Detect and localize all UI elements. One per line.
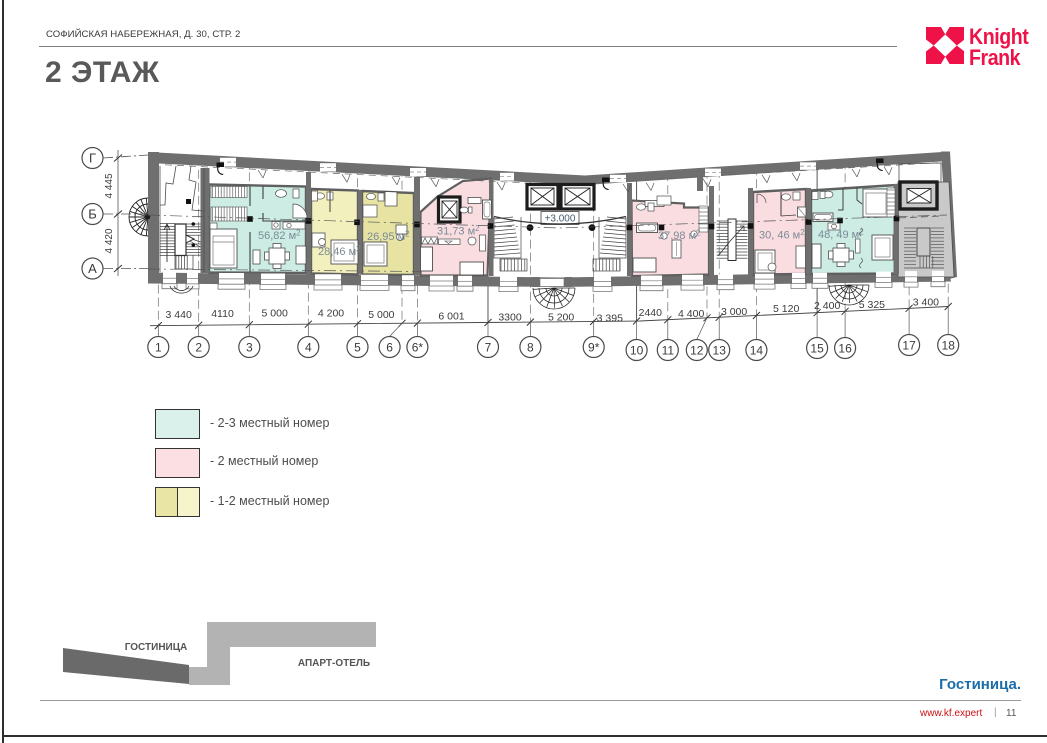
svg-text:3 440: 3 440	[166, 309, 192, 321]
svg-text:17: 17	[902, 338, 916, 352]
svg-text:48, 49 м2: 48, 49 м2	[818, 228, 864, 242]
svg-text:3 000: 3 000	[721, 306, 747, 318]
svg-text:18: 18	[942, 338, 956, 352]
svg-text:14: 14	[750, 343, 764, 357]
svg-text:4: 4	[305, 340, 312, 354]
svg-text:4 420: 4 420	[104, 228, 115, 253]
svg-text:4 445: 4 445	[104, 173, 115, 198]
svg-text:ГОСТИНИЦА: ГОСТИНИЦА	[125, 642, 188, 653]
svg-text:2440: 2440	[639, 307, 663, 319]
svg-text:28,46 м2: 28,46 м2	[318, 245, 361, 259]
svg-text:30, 46 м2: 30, 46 м2	[759, 228, 805, 242]
svg-text:56,82 м2: 56,82 м2	[258, 229, 301, 243]
svg-text:8: 8	[527, 340, 534, 354]
svg-text:4 400: 4 400	[678, 308, 704, 320]
svg-text:4 200: 4 200	[318, 308, 344, 320]
svg-text:6: 6	[386, 340, 393, 354]
svg-text:6 001: 6 001	[438, 311, 464, 323]
svg-text:5 000: 5 000	[368, 309, 394, 321]
svg-text:3: 3	[246, 340, 253, 354]
svg-text:10: 10	[630, 343, 644, 357]
svg-text:5 325: 5 325	[859, 299, 885, 311]
svg-text:3 400: 3 400	[913, 297, 939, 309]
svg-text:26,95 м2: 26,95 м2	[367, 230, 410, 244]
svg-text:9*: 9*	[588, 340, 600, 354]
svg-text:3300: 3300	[498, 312, 522, 324]
svg-text:1: 1	[155, 340, 162, 354]
svg-text:16: 16	[838, 341, 852, 355]
svg-text:13: 13	[713, 343, 727, 357]
svg-text:3 395: 3 395	[597, 313, 623, 325]
svg-text:2: 2	[195, 340, 202, 354]
svg-text:5 200: 5 200	[548, 312, 574, 324]
svg-text:5 000: 5 000	[262, 308, 288, 320]
svg-text:А: А	[88, 261, 97, 276]
svg-text:Г: Г	[89, 151, 96, 166]
svg-text:4110: 4110	[211, 308, 234, 320]
svg-text:15: 15	[810, 341, 824, 355]
svg-text:+3.000: +3.000	[545, 213, 576, 224]
svg-text:12: 12	[690, 343, 704, 357]
svg-text:31,73 м2: 31,73 м2	[437, 224, 480, 238]
svg-text:7: 7	[485, 340, 492, 354]
svg-text:37,98 м2: 37,98 м2	[658, 229, 701, 243]
svg-text:Б: Б	[88, 207, 97, 222]
svg-text:5 120: 5 120	[773, 303, 799, 315]
svg-text:2 400: 2 400	[814, 300, 840, 312]
svg-text:АПАРТ-ОТЕЛЬ: АПАРТ-ОТЕЛЬ	[298, 658, 370, 669]
svg-text:6*: 6*	[412, 340, 424, 354]
svg-text:11: 11	[662, 343, 675, 357]
svg-text:5: 5	[354, 340, 361, 354]
